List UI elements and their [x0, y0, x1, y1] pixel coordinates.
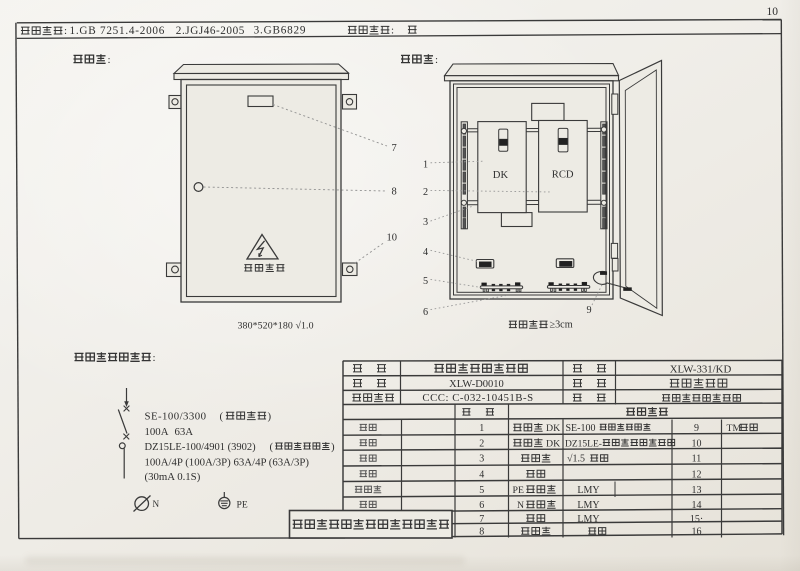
svg-text:8: 8	[392, 187, 397, 198]
svg-text:DZ15LE-: DZ15LE-	[565, 439, 602, 449]
svg-text::: :	[108, 54, 111, 66]
svg-text:3: 3	[479, 454, 484, 465]
svg-text:SE-100: SE-100	[566, 423, 596, 434]
svg-text:9: 9	[587, 305, 592, 316]
svg-text:8: 8	[479, 527, 484, 538]
svg-text:RCD: RCD	[552, 170, 574, 181]
svg-text:14: 14	[692, 500, 702, 511]
svg-text:LMY: LMY	[577, 500, 599, 511]
svg-text:13: 13	[692, 485, 702, 496]
svg-text:16: 16	[692, 527, 702, 538]
svg-text:3: 3	[423, 217, 428, 228]
svg-text:4: 4	[479, 469, 484, 480]
svg-text:DK: DK	[493, 170, 509, 181]
svg-text:7: 7	[479, 514, 484, 525]
svg-text:DK: DK	[546, 423, 560, 434]
svg-text:2: 2	[423, 187, 428, 198]
svg-text:XLW-D0010: XLW-D0010	[449, 379, 504, 390]
svg-text:PE: PE	[237, 499, 248, 510]
svg-text:N: N	[517, 500, 524, 511]
svg-text::: :	[153, 352, 156, 364]
svg-text:(: (	[220, 411, 224, 423]
svg-text:SE-100/3300: SE-100/3300	[145, 411, 207, 423]
svg-text:TM: TM	[727, 423, 742, 434]
svg-text:≥3cm: ≥3cm	[550, 320, 573, 331]
svg-text:PE: PE	[513, 485, 524, 496]
svg-text:10: 10	[387, 233, 398, 244]
svg-text:12: 12	[692, 469, 702, 480]
svg-text:2.JGJ46-2005: 2.JGJ46-2005	[176, 25, 245, 37]
svg-text:10: 10	[692, 438, 702, 449]
svg-text:6: 6	[479, 500, 484, 511]
svg-text:1: 1	[479, 423, 484, 434]
svg-text:4: 4	[423, 247, 428, 258]
svg-text:): )	[268, 411, 272, 423]
svg-text:9: 9	[694, 423, 699, 434]
svg-text:N: N	[153, 499, 160, 509]
svg-text:63A: 63A	[175, 426, 194, 438]
svg-text:10: 10	[767, 6, 779, 18]
svg-text:5: 5	[479, 485, 484, 496]
svg-text:100A: 100A	[145, 426, 169, 438]
svg-text::: :	[435, 54, 438, 66]
svg-text:3.GB6829: 3.GB6829	[254, 25, 307, 37]
svg-text:5: 5	[423, 276, 428, 287]
svg-text:): )	[331, 441, 335, 453]
svg-text:380*520*180 √1.0: 380*520*180 √1.0	[238, 321, 314, 332]
svg-text:DK: DK	[546, 438, 560, 449]
svg-text:7: 7	[392, 143, 397, 154]
svg-text:DZ15LE-100/4901 (3902): DZ15LE-100/4901 (3902)	[145, 442, 257, 453]
svg-text::: :	[391, 24, 394, 36]
svg-text:CCC: C-032-10451B-S: CCC: C-032-10451B-S	[422, 392, 533, 404]
svg-text:LMY: LMY	[577, 514, 599, 525]
svg-text:11: 11	[692, 454, 702, 465]
svg-text:(: (	[270, 441, 274, 453]
svg-text:(30mA 0.1S): (30mA 0.1S)	[145, 471, 201, 483]
svg-text:LMY: LMY	[577, 485, 599, 496]
svg-text:2: 2	[479, 438, 484, 449]
svg-text::: :	[64, 25, 67, 37]
svg-text:√1.5: √1.5	[567, 454, 585, 465]
svg-text:15·: 15·	[690, 514, 703, 525]
svg-text:6: 6	[423, 307, 428, 318]
svg-text:XLW-331/KD: XLW-331/KD	[670, 363, 732, 375]
svg-text:100A/4P (100A/3P) 63A/4P (63A: 100A/4P (100A/3P) 63A/4P (63A/3P)	[145, 456, 310, 468]
svg-text:1: 1	[423, 159, 428, 170]
svg-text:1.GB 7251.4-2006: 1.GB 7251.4-2006	[70, 25, 166, 37]
